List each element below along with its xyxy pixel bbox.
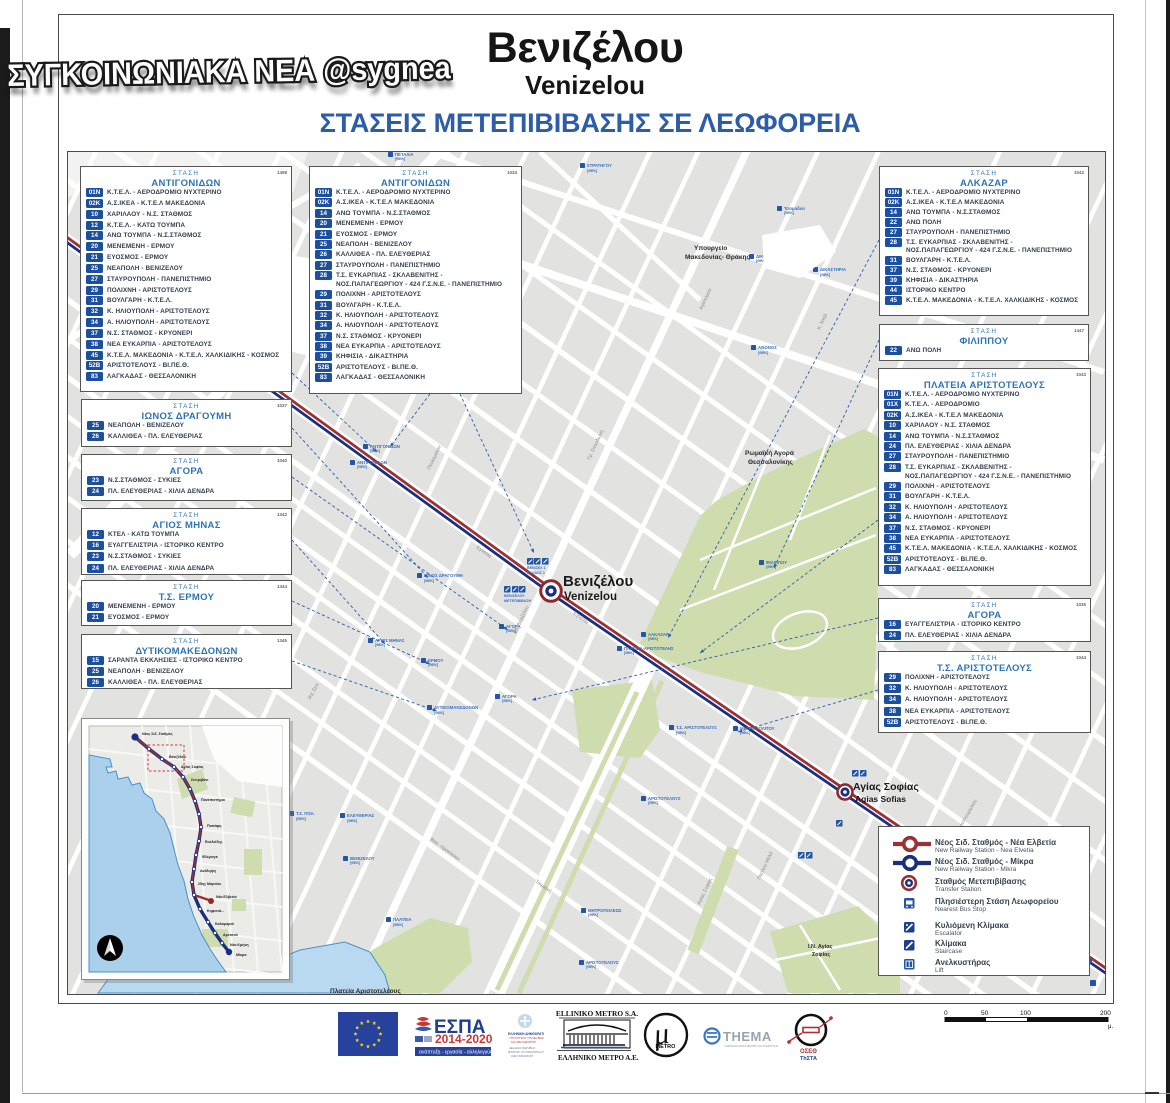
svg-text:25ης Μαρτίου: 25ης Μαρτίου bbox=[198, 882, 221, 886]
svg-text:Ανάληψη: Ανάληψη bbox=[200, 869, 216, 873]
svg-text:ΙΩΝΟΣ ΔΡΑΓΟΥΜΗ: ΙΩΝΟΣ ΔΡΑΓΟΥΜΗ bbox=[424, 573, 463, 578]
svg-text:[ΘΕΚ]: [ΘΕΚ] bbox=[375, 643, 385, 647]
svg-text:ΚΑΙ ΜΕΤΑΦΟΡΩΝ: ΚΑΙ ΜΕΤΑΦΟΡΩΝ bbox=[511, 1040, 536, 1044]
svg-text:Φλέμινγκ: Φλέμινγκ bbox=[202, 855, 218, 859]
svg-text:Μακεδονίας- Θράκης: Μακεδονίας- Θράκης bbox=[685, 254, 750, 261]
svg-text:[ΘΕΚ]: [ΘΕΚ] bbox=[428, 663, 438, 667]
svg-text:Παπάφη: Παπάφη bbox=[207, 824, 221, 828]
svg-text:[ΘΕΚ]: [ΘΕΚ] bbox=[502, 699, 512, 703]
svg-text:Νέα Κρήνη: Νέα Κρήνη bbox=[230, 943, 249, 947]
svg-text:Αρετσού: Αρετσού bbox=[223, 933, 238, 937]
svg-text:[ΘΕΚ]: [ΘΕΚ] bbox=[587, 169, 597, 173]
svg-text:HELLENIC REPUBLIC: HELLENIC REPUBLIC bbox=[509, 1046, 536, 1050]
svg-text:[ΘΕΚ]: [ΘΕΚ] bbox=[648, 801, 658, 805]
svg-text:[ΘΕΚ]: [ΘΕΚ] bbox=[766, 565, 776, 569]
svg-text:Τ.Σ. ΑΡΙΣΤΟΤΕΛΟΥΣ: Τ.Σ. ΑΡΙΣΤΟΤΕΛΟΥΣ bbox=[676, 725, 717, 730]
svg-text:Ρωμαϊκή Αγορά: Ρωμαϊκή Αγορά bbox=[745, 450, 794, 457]
svg-text:[ΘΕΚ]: [ΘΕΚ] bbox=[434, 711, 444, 715]
svg-text:Πανεπιστήμιο: Πανεπιστήμιο bbox=[201, 798, 226, 802]
svg-text:ELLINIKO METRO S.A.: ELLINIKO METRO S.A. bbox=[556, 1009, 638, 1018]
svg-text:Πλατεία Αριστοτελέους: Πλατεία Αριστοτελέους bbox=[330, 987, 401, 995]
svg-text:[ΘΕΚ]: [ΘΕΚ] bbox=[588, 913, 598, 917]
svg-text:Νέος Σιδ. Σταθμός: Νέος Σιδ. Σταθμός bbox=[142, 732, 173, 736]
svg-text:[ΘΕΚ]: [ΘΕΚ] bbox=[424, 579, 434, 583]
svg-text:μ.: μ. bbox=[1108, 1024, 1113, 1030]
svg-text:THESSALONIKI METRO AUTOMATION: THESSALONIKI METRO AUTOMATION bbox=[724, 1044, 778, 1048]
svg-text:[ΘΕΚ]: [ΘΕΚ] bbox=[393, 923, 403, 927]
svg-text:[ΘΕΚ]: [ΘΕΚ] bbox=[506, 629, 516, 633]
svg-text:[ΘΕΚ]: [ΘΕΚ] bbox=[820, 273, 830, 277]
svg-text:Θεσσαλονίκης: Θεσσαλονίκης bbox=[748, 458, 794, 466]
svg-text:[ΘΕΚ]: [ΘΕΚ] bbox=[648, 637, 658, 641]
svg-text:Ι.Ν. Αγίας: Ι.Ν. Αγίας bbox=[808, 944, 833, 950]
svg-text:ΜΕΤΕΠΙΒΙΒΑΣΗ: ΜΕΤΕΠΙΒΙΒΑΣΗ bbox=[504, 599, 532, 603]
svg-text:2014-2020: 2014-2020 bbox=[435, 1032, 493, 1046]
svg-text:ΔΥΤΙΚΟΜΑΚΕΔΟΝΩΝ: ΔΥΤΙΚΟΜΑΚΕΔΟΝΩΝ bbox=[434, 705, 478, 710]
svg-text:ΒΕΝΙΖΕΛΟΥ: ΒΕΝΙΖΕΛΟΥ bbox=[504, 594, 525, 598]
svg-text:Ευκλείδης: Ευκλείδης bbox=[205, 840, 223, 844]
svg-text:METRO: METRO bbox=[656, 1044, 677, 1050]
svg-text:ΕΛΛΗΝΙΚΟ ΜΕΤΡΟ Α.Ε.: ΕΛΛΗΝΙΚΟ ΜΕΤΡΟ Α.Ε. bbox=[558, 1054, 639, 1062]
svg-text:ΔΙΚΑΣΤΗΡΙΑ: ΔΙΚΑΣΤΗΡΙΑ bbox=[820, 267, 846, 272]
svg-text:MINISTRY OF INFRASTRUCTURE: MINISTRY OF INFRASTRUCTURE bbox=[508, 1050, 544, 1054]
svg-text:[ΘΕΚ]: [ΘΕΚ] bbox=[758, 351, 768, 355]
svg-text:[ΘΕΚ]: [ΘΕΚ] bbox=[357, 465, 367, 469]
svg-text:ΕΞΟΔΟΣ 1: ΕΞΟΔΟΣ 1 bbox=[527, 571, 545, 575]
svg-text:[ΘΕΚ]: [ΘΕΚ] bbox=[296, 817, 306, 821]
svg-text:AND TRANSPORT: AND TRANSPORT bbox=[511, 1054, 534, 1058]
svg-text:[ΘΕΚ]: [ΘΕΚ] bbox=[676, 731, 686, 735]
svg-text:THEMA: THEMA bbox=[723, 1029, 772, 1044]
svg-text:Αγίας Σοφίας: Αγίας Σοφίας bbox=[181, 765, 204, 769]
svg-text:Σιντριβάνι: Σιντριβάνι bbox=[191, 778, 208, 782]
svg-text:[ΘΕΚ]: [ΘΕΚ] bbox=[740, 731, 750, 735]
svg-text:[ΘΕΚ]: [ΘΕΚ] bbox=[370, 449, 380, 453]
svg-text:[ΘΕΚ]: [ΘΕΚ] bbox=[624, 651, 634, 655]
svg-text:ΕΛΕΥΘΕΡΙΑΣ: ΕΛΕΥΘΕΡΙΑΣ bbox=[347, 813, 375, 818]
svg-text:[ΘΕΚ]: [ΘΕΚ] bbox=[347, 819, 357, 823]
svg-text:Νέα Ελβετία: Νέα Ελβετία bbox=[216, 895, 237, 899]
svg-text:Καλαμαριά: Καλαμαριά bbox=[215, 922, 235, 926]
svg-text:50: 50 bbox=[981, 1010, 989, 1017]
svg-text:Υπουργείο: Υπουργείο bbox=[694, 245, 727, 252]
svg-text:Μίκρα: Μίκρα bbox=[236, 953, 247, 957]
svg-text:ThΣTA: ThΣTA bbox=[800, 1056, 817, 1062]
svg-text:[ΘΕΚ]: [ΘΕΚ] bbox=[586, 965, 596, 969]
svg-text:[ΘΕΚ]: [ΘΕΚ] bbox=[350, 861, 360, 865]
svg-text:[ΘΕΚ]: [ΘΕΚ] bbox=[784, 211, 794, 215]
svg-text:ανάπτυξη - εργασία - αλληλεγγύ: ανάπτυξη - εργασία - αλληλεγγύη bbox=[419, 1049, 493, 1056]
svg-text:[ΘΕΚ]: [ΘΕΚ] bbox=[395, 157, 405, 161]
svg-text:Βενιζέλου: Βενιζέλου bbox=[169, 755, 186, 759]
svg-text:100: 100 bbox=[1020, 1010, 1031, 1017]
svg-text:ΠΛΑΤΕΙΑ: ΠΛΑΤΕΙΑ bbox=[393, 917, 412, 922]
svg-text:Κηφισιά...: Κηφισιά... bbox=[207, 909, 224, 913]
svg-text:200: 200 bbox=[1100, 1010, 1111, 1017]
svg-text:ΣΤΡΑΤΗΓΟΥ: ΣΤΡΑΤΗΓΟΥ bbox=[587, 163, 612, 168]
svg-text:ΟΣΕΘ: ΟΣΕΘ bbox=[800, 1049, 817, 1055]
svg-text:ΑΘΩΝΟΣ: ΑΘΩΝΟΣ bbox=[758, 345, 777, 350]
svg-text:Σοφίας: Σοφίας bbox=[812, 952, 831, 958]
svg-text:ΒΕΝΙΖΕΛ 1: ΒΕΝΙΖΕΛ 1 bbox=[527, 566, 546, 570]
svg-text:Τ.Σ. ΠΟΛ.: Τ.Σ. ΠΟΛ. bbox=[296, 811, 315, 816]
svg-text:0: 0 bbox=[944, 1010, 948, 1017]
